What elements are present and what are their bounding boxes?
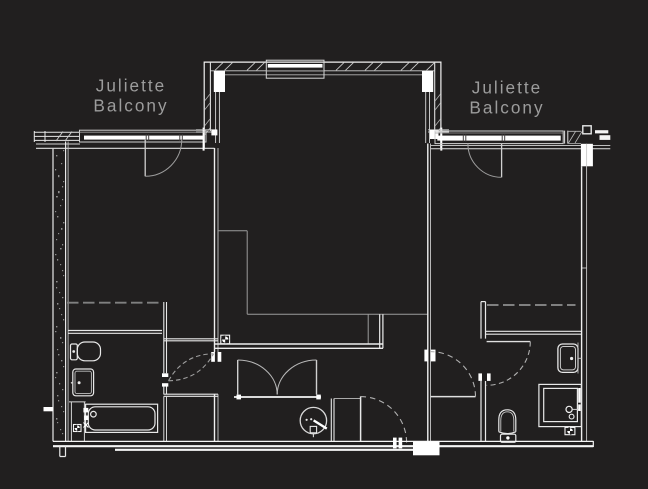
svg-text:Juliette: Juliette (472, 78, 542, 98)
svg-text:Balcony: Balcony (469, 97, 544, 117)
svg-text:Juliette: Juliette (96, 76, 166, 96)
svg-text:Balcony: Balcony (93, 95, 168, 115)
